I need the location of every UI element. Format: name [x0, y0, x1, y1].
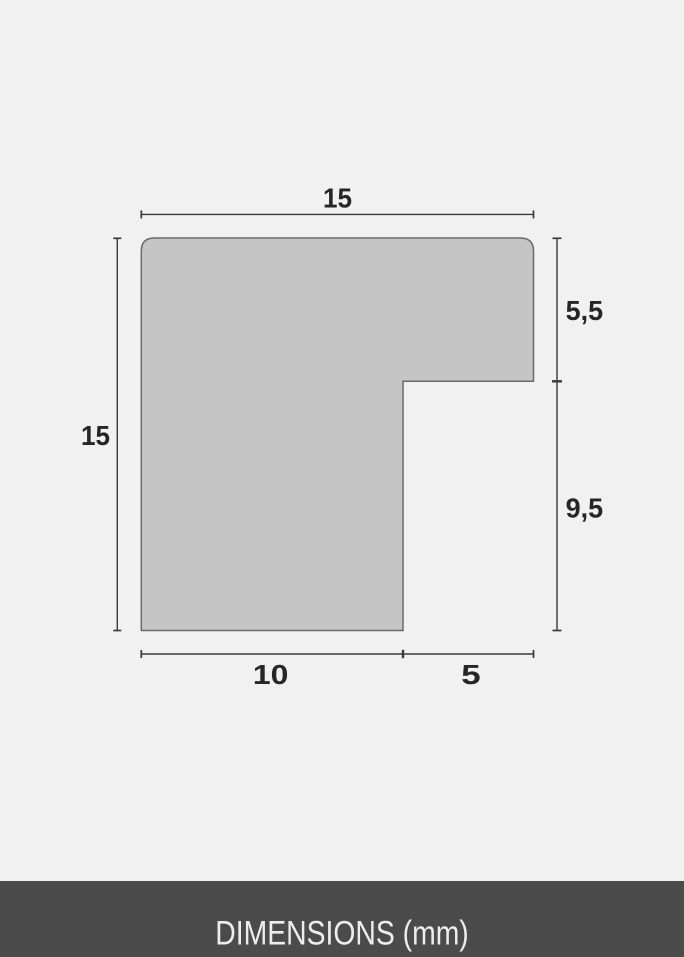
svg-text:9,5: 9,5: [566, 492, 604, 523]
svg-text:10: 10: [253, 659, 289, 690]
svg-text:15: 15: [81, 420, 110, 451]
svg-text:15: 15: [323, 182, 352, 213]
svg-text:5,5: 5,5: [566, 295, 604, 326]
svg-text:5: 5: [461, 659, 480, 690]
svg-text:DIMENSIONS (mm): DIMENSIONS (mm): [215, 915, 469, 953]
